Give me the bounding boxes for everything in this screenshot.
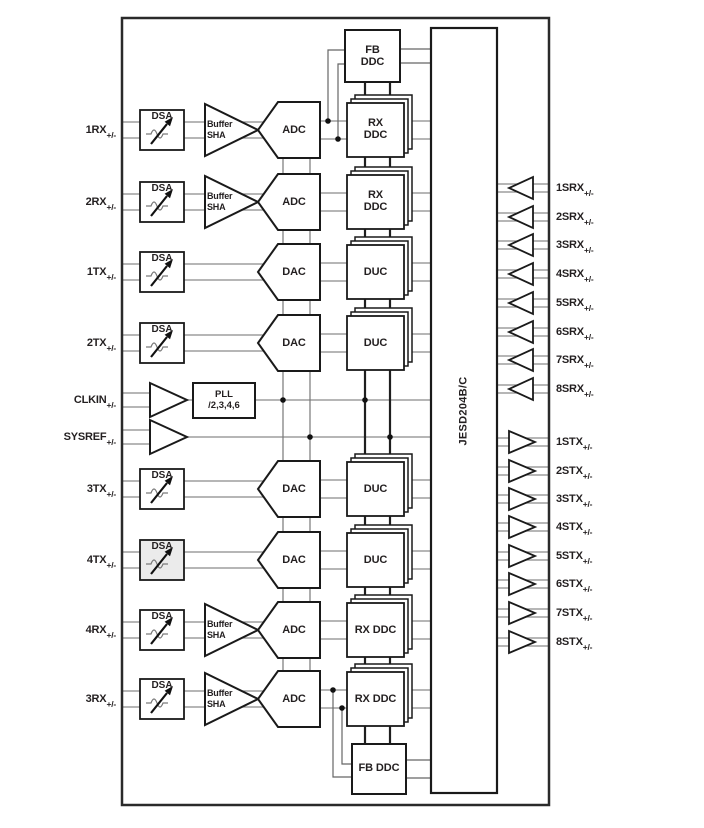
converter-clock-rails (283, 158, 310, 671)
srx-input-buffer-2 (509, 206, 533, 228)
port-label-4tx: 4TX+/- (22, 552, 116, 568)
port-label-6srx: 6SRX+/- (556, 324, 636, 340)
srx-input-buffer-6 (509, 321, 533, 343)
port-label-2srx: 2SRX+/- (556, 209, 636, 225)
srx-input-buffer-3 (509, 234, 533, 256)
fb-ddc-top-label: FBDDC (345, 45, 400, 68)
port-label-4srx: 4SRX+/- (556, 266, 636, 282)
port-label-5stx: 5STX+/- (556, 548, 636, 564)
port-label-2tx: 2TX+/- (22, 335, 116, 351)
dsa-label: DSA (140, 324, 184, 335)
block-diagram: 1RX+/- 2RX+/- 1TX+/- 2TX+/- CLKIN+/- SYS… (0, 0, 704, 828)
stx-output-buffer-8 (509, 631, 535, 653)
port-label-4stx: 4STX+/- (556, 519, 636, 535)
dac-label: DAC (262, 337, 326, 349)
srx-input-buffer-7 (509, 349, 533, 371)
stx-output-buffer-3 (509, 488, 535, 510)
dsa-label: DSA (140, 183, 184, 194)
buffer-sha-label: BufferSHA (207, 191, 253, 212)
rx-ddc-label: RXDDC (347, 118, 404, 141)
stx-output-buffer-7 (509, 602, 535, 624)
port-label-1tx: 1TX+/- (22, 264, 116, 280)
dac-label: DAC (262, 554, 326, 566)
fb-ddc-bottom-label: FB DDC (352, 762, 406, 774)
port-label-1rx: 1RX+/- (22, 122, 116, 138)
stx-output-buffer-6 (509, 573, 535, 595)
port-label-clkin: CLKIN+/- (22, 392, 116, 408)
port-label-1stx: 1STX+/- (556, 434, 636, 450)
port-label-1srx: 1SRX+/- (556, 180, 636, 196)
adc-label: ADC (262, 124, 326, 136)
srx-input-buffer-5 (509, 292, 533, 314)
srx-input-buffer-1 (509, 177, 533, 199)
adc-label: ADC (262, 196, 326, 208)
dac-label: DAC (262, 483, 326, 495)
port-label-2rx: 2RX+/- (22, 194, 116, 210)
srx-input-buffer-4 (509, 263, 533, 285)
srx-input-buffer-8 (509, 378, 533, 400)
port-label-3srx: 3SRX+/- (556, 237, 636, 253)
stx-output-buffer-4 (509, 516, 535, 538)
port-label-8stx: 8STX+/- (556, 634, 636, 650)
rx-ddc-label: RX DDC (347, 693, 404, 705)
port-label-4rx: 4RX+/- (22, 622, 116, 638)
serdes-wires (497, 184, 549, 646)
buffer-sha-label: BufferSHA (207, 119, 253, 140)
duc-label: DUC (347, 337, 404, 349)
port-label-5srx: 5SRX+/- (556, 295, 636, 311)
stx-output-buffer-5 (509, 545, 535, 567)
clkin-buffer (150, 383, 187, 417)
duc-label: DUC (347, 554, 404, 566)
dsa-label: DSA (140, 253, 184, 264)
adc-label: ADC (262, 693, 326, 705)
sysref-buffer (150, 420, 187, 454)
pll-label: PLL/2,3,4,6 (193, 389, 255, 411)
buffer-sha-label: BufferSHA (207, 619, 253, 640)
rx-ddc-label: RXDDC (347, 190, 404, 213)
dsa-label: DSA (140, 541, 184, 552)
port-label-3stx: 3STX+/- (556, 491, 636, 507)
port-label-7srx: 7SRX+/- (556, 352, 636, 368)
adc-label: ADC (262, 624, 326, 636)
port-label-2stx: 2STX+/- (556, 463, 636, 479)
dsa-label: DSA (140, 470, 184, 481)
rx-ddc-label: RX DDC (347, 624, 404, 636)
port-label-3tx: 3TX+/- (22, 481, 116, 497)
jesd-label: JESD204B/C (431, 28, 497, 793)
dsa-label: DSA (140, 680, 184, 691)
dac-label: DAC (262, 266, 326, 278)
port-label-8srx: 8SRX+/- (556, 381, 636, 397)
port-label-6stx: 6STX+/- (556, 576, 636, 592)
buffer-sha-label: BufferSHA (207, 688, 253, 709)
stx-output-buffer-2 (509, 460, 535, 482)
duc-label: DUC (347, 483, 404, 495)
stx-output-buffer-1 (509, 431, 535, 453)
port-label-7stx: 7STX+/- (556, 605, 636, 621)
dsa-label: DSA (140, 111, 184, 122)
port-label-sysref: SYSREF+/- (22, 429, 116, 445)
port-label-3rx: 3RX+/- (22, 691, 116, 707)
dsa-label: DSA (140, 611, 184, 622)
duc-label: DUC (347, 266, 404, 278)
